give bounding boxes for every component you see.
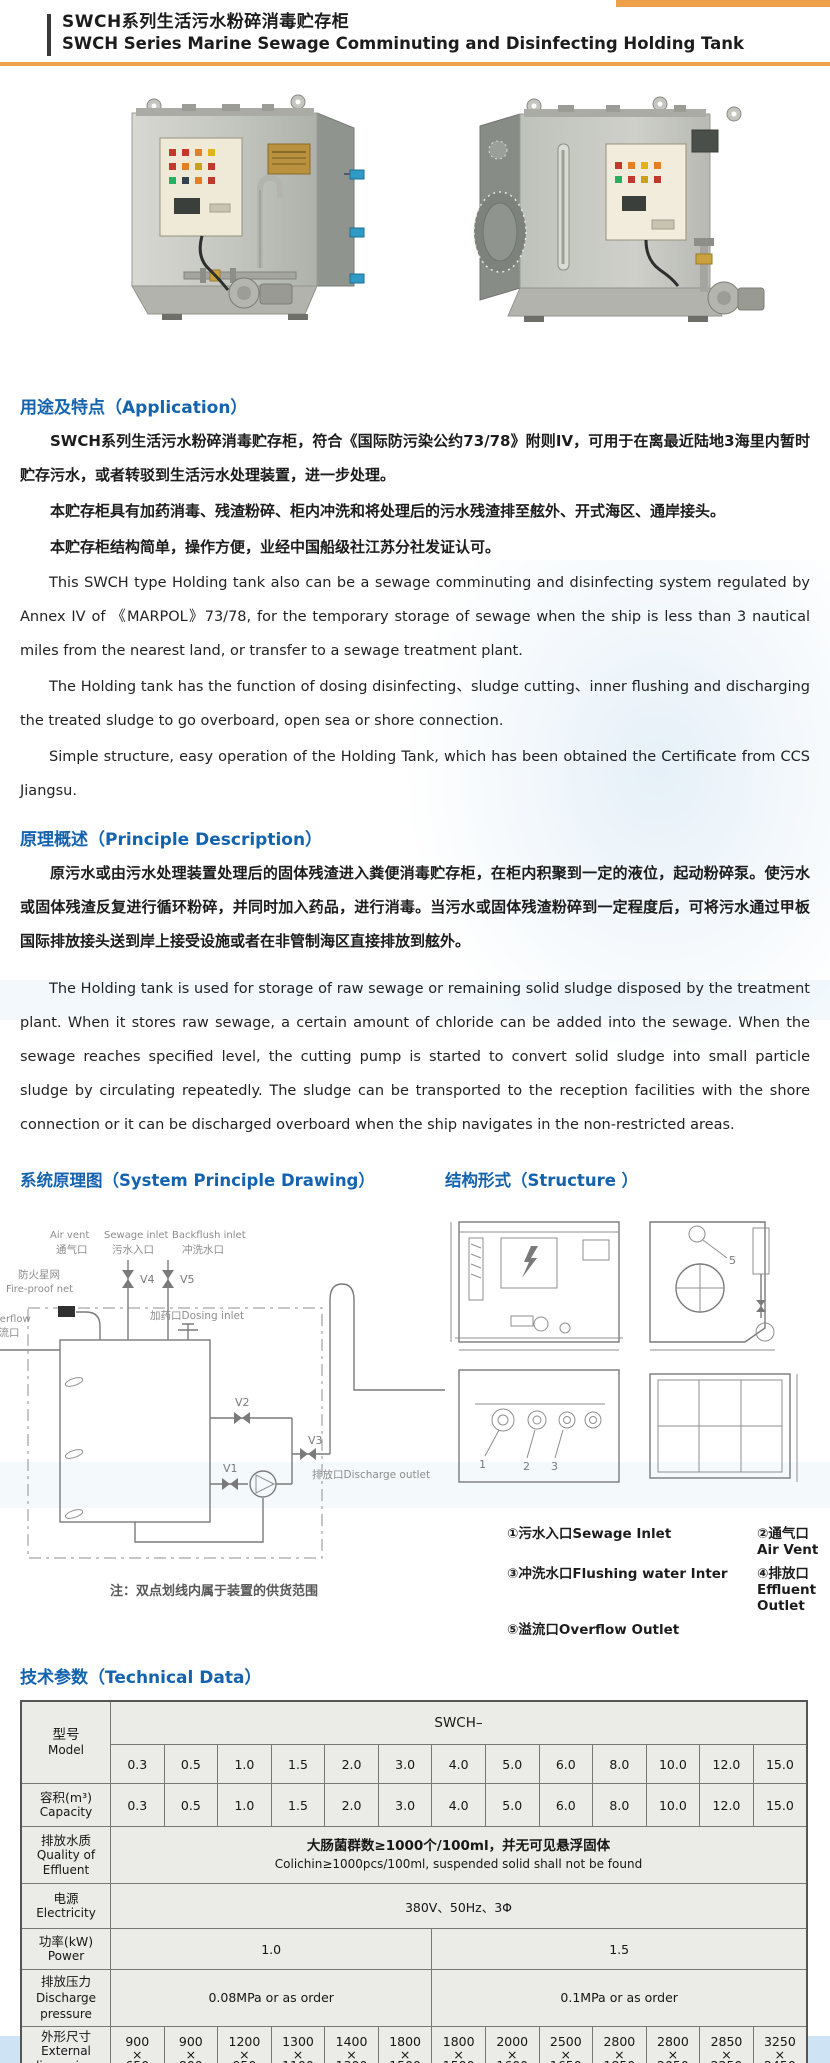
table-cell: 2.0 [325,1784,379,1827]
label-line: Electricity [22,1906,110,1921]
label-line: Effluent [22,1863,110,1878]
table-row: 0.30.51.01.52.03.04.05.06.08.010.012.015… [21,1745,807,1784]
system-principle-heading: 系统原理图（System Principle Drawing） [20,1168,445,1194]
table-cell: 3.0 [378,1784,432,1827]
table-row: 电源 Electricity 380V、50Hz、3Φ [21,1884,807,1929]
application-heading: 用途及特点（Application） [20,394,810,422]
label-line: 排放压力 [22,1974,110,1990]
schematic-note: 注：双点划线内属于装置的供货范围 [110,1580,445,1599]
label-sewage-inlet-zh: 污水入口 [112,1244,154,1256]
system-principle-drawing: Air vent 通气口 Sewage inlet 污水入口 Backflush… [0,1222,445,1570]
application-paragraph-en: This SWCH type Holding tank also can be … [20,566,810,668]
catalog-page: SWCH系列生活污水粉碎消毒贮存柜 SWCH Series Marine Sew… [0,0,830,2063]
label-fireproof-zh: 防火星网 [18,1268,60,1281]
principle-paragraph-zh: 原污水或由污水处理装置处理后的固体残渣进入粪便消毒贮存柜，在柜内积聚到一定的液位… [20,856,810,958]
table-cell: 1800×1500×1500 [378,2027,432,2063]
label-air-vent-en: Air vent [50,1230,89,1241]
section-principle: 原理概述（Principle Description） 原污水或由污水处理装置处… [20,826,810,1142]
system-principle-column: 系统原理图（System Principle Drawing） [0,1168,445,1638]
table-cell: 1.0 [218,1745,272,1784]
label-overflow-zh: 溢流口 [0,1326,20,1339]
row-label-model: 型号 Model [21,1701,111,1784]
application-paragraph-en: The Holding tank has the function of dos… [20,670,810,738]
table-cell: 12.0 [700,1784,754,1827]
page-title-en: SWCH Series Marine Sewage Comminuting an… [62,33,830,55]
callout-2: 2 [523,1460,530,1473]
table-cell: 0.5 [164,1745,218,1784]
table-row: 型号 Model SWCH– [21,1701,807,1745]
series-header-cell: SWCH– [111,1701,808,1745]
legend-item: ③冲洗水口Flushing water Inter [507,1562,757,1614]
label-line: 型号 [22,1728,110,1743]
table-cell: 1400×1300×1500 [325,2027,379,2063]
table-row: 外形尺寸 External dimensions L×B×H (mm) 900×… [21,2027,807,2063]
table-cell: 900×800×1500 [164,2027,218,2063]
table-cell: 0.5 [164,1784,218,1827]
table-cell: 12.0 [700,1745,754,1784]
label-line: 容积(m³) [22,1790,110,1805]
quality-en: Colichin≥1000pcs/100ml, suspended solid … [111,1856,806,1873]
label-line: pressure [22,2006,110,2022]
label-v1: V1 [223,1462,238,1475]
pressure-right-cell: 0.1MPa or as order [432,1970,807,2027]
principle-paragraph-en: The Holding tank is used for storage of … [20,972,810,1142]
tank-photo-left [92,86,392,322]
label-line: External [22,2044,110,2059]
label-line: Power [22,1949,110,1964]
label-line: 电源 [22,1891,110,1906]
table-row: 排放水质 Quality of Effluent 大肠菌群数≥1000个/100… [21,1827,807,1884]
label-air-vent-zh: 通气口 [56,1243,88,1256]
label-line: 功率(kW) [22,1934,110,1949]
page-header: SWCH系列生活污水粉碎消毒贮存柜 SWCH Series Marine Sew… [0,0,830,55]
quality-value-cell: 大肠菌群数≥1000个/100ml，并无可见悬浮固体 Colichin≥1000… [111,1827,808,1884]
legend-item: ⑤溢流口Overflow Outlet [507,1618,757,1638]
label-v2: V2 [235,1396,250,1409]
table-cell: 8.0 [593,1745,647,1784]
label-line: Capacity [22,1805,110,1820]
legend-item: ①污水入口Sewage Inlet [507,1522,757,1558]
principle-heading: 原理概述（Principle Description） [20,826,810,854]
table-cell: 0.3 [111,1745,165,1784]
label-sewage-inlet-en: Sewage inlet [104,1230,169,1241]
structure-column: 结构形式（Structure ） [445,1168,830,1638]
label-backflush-en: Backflush inlet [172,1230,246,1241]
title-accent-bar [47,14,51,56]
technical-heading: 技术参数（Technical Data） [20,1664,830,1692]
table-cell: 10.0 [646,1784,700,1827]
table-cell: 2850×2250×2300 [700,2027,754,2063]
structure-drawings: 5 1 2 3 [445,1208,830,1508]
table-cell: 1200×950×1500 [218,2027,272,2063]
page-title-zh: SWCH系列生活污水粉碎消毒贮存柜 [62,12,830,33]
table-cell: 15.0 [753,1745,807,1784]
label-line: Model [22,1743,110,1758]
power-right-cell: 1.5 [432,1929,807,1970]
table-cell: 15.0 [753,1784,807,1827]
structure-legend: ①污水入口Sewage Inlet ②通气口Air Vent ③冲洗水口Flus… [507,1522,830,1638]
structure-heading: 结构形式（Structure ） [445,1168,830,1194]
label-fireproof-en: Fire-proof net [6,1284,73,1295]
table-cell: 4.0 [432,1784,486,1827]
section-application: 用途及特点（Application） SWCH系列生活污水粉碎消毒贮存柜，符合《… [20,394,810,808]
row-label-dimensions: 外形尺寸 External dimensions L×B×H (mm) [21,2027,111,2063]
table-cell: 2500×1650×2000 [539,2027,593,2063]
table-row: 容积(m³) Capacity 0.30.51.01.52.03.04.05.0… [21,1784,807,1827]
table-cell: 1.5 [271,1745,325,1784]
label-line: dimensions [22,2059,110,2063]
table-cell: 3250×2450×2300 [753,2027,807,2063]
application-paragraph-zh: 本贮存柜结构简单，操作方便，业经中国船级社江苏分社发证认可。 [20,530,810,564]
table-cell: 2000×1600×2000 [485,2027,539,2063]
label-line: 外形尺寸 [22,2029,110,2044]
label-line: Discharge [22,1990,110,2006]
label-discharge: 排放口Discharge outlet [312,1468,430,1481]
table-row: 功率(kW) Power 1.0 1.5 [21,1929,807,1970]
technical-table: 型号 Model SWCH– 0.30.51.01.52.03.04.05.06… [20,1700,808,2063]
table-cell: 2800×2050×2300 [646,2027,700,2063]
table-cell: 2800×1850×2000 [593,2027,647,2063]
table-cell: 10.0 [646,1745,700,1784]
row-label-quality: 排放水质 Quality of Effluent [21,1827,111,1884]
label-v5: V5 [180,1273,195,1286]
legend-item: ④排放口Effluent Outlet [757,1562,830,1614]
table-cell: 4.0 [432,1745,486,1784]
table-cell: 0.3 [111,1784,165,1827]
table-cell: 6.0 [539,1784,593,1827]
callout-1: 1 [479,1458,486,1471]
table-cell: 6.0 [539,1745,593,1784]
application-paragraph-en: Simple structure, easy operation of the … [20,740,810,808]
power-left-cell: 1.0 [111,1929,432,1970]
table-row: 排放压力 Discharge pressure 0.08MPa or as or… [21,1970,807,2027]
electricity-value-cell: 380V、50Hz、3Φ [111,1884,808,1929]
row-label-capacity: 容积(m³) Capacity [21,1784,111,1827]
title-underline [0,62,830,66]
section-technical-data: 技术参数（Technical Data） 型号 Model SWCH– 0.30… [20,1664,830,2063]
table-cell: 1800×1500×2000 [432,2027,486,2063]
label-backflush-zh: 冲洗水口 [182,1243,224,1256]
table-cell: 5.0 [485,1784,539,1827]
section-drawings: 系统原理图（System Principle Drawing） [0,1168,830,1638]
label-v4: V4 [140,1273,155,1286]
row-label-pressure: 排放压力 Discharge pressure [21,1970,111,2027]
tank-photo-right [438,92,766,322]
table-cell: 1300×1100×1500 [271,2027,325,2063]
quality-zh: 大肠菌群数≥1000个/100ml，并无可见悬浮固体 [111,1837,806,1856]
label-v3: V3 [308,1434,323,1447]
table-cell: 1.5 [271,1784,325,1827]
table-cell: 2.0 [325,1745,379,1784]
label-dosing: 加药口Dosing inlet [150,1310,244,1322]
row-label-electricity: 电源 Electricity [21,1884,111,1929]
callout-5: 5 [729,1254,736,1267]
label-line: Quality of [22,1848,110,1863]
table-cell: 8.0 [593,1784,647,1827]
row-label-power: 功率(kW) Power [21,1929,111,1970]
legend-item: ②通气口Air Vent [757,1522,830,1558]
table-cell: 5.0 [485,1745,539,1784]
application-paragraph-zh: 本贮存柜具有加药消毒、残渣粉碎、柜内冲洗和将处理后的污水残渣排至舷外、开式海区、… [20,494,810,528]
table-cell: 3.0 [378,1745,432,1784]
table-cell: 1.0 [218,1784,272,1827]
product-photos [92,84,830,322]
application-paragraph-zh: SWCH系列生活污水粉碎消毒贮存柜，符合《国际防污染公约73/78》附则IV，可… [20,424,810,492]
callout-3: 3 [551,1460,558,1473]
table-cell: 900×650×1350 [111,2027,165,2063]
label-line: 排放水质 [22,1833,110,1848]
label-overflow-en: Overflow [0,1314,31,1325]
pressure-left-cell: 0.08MPa or as order [111,1970,432,2027]
